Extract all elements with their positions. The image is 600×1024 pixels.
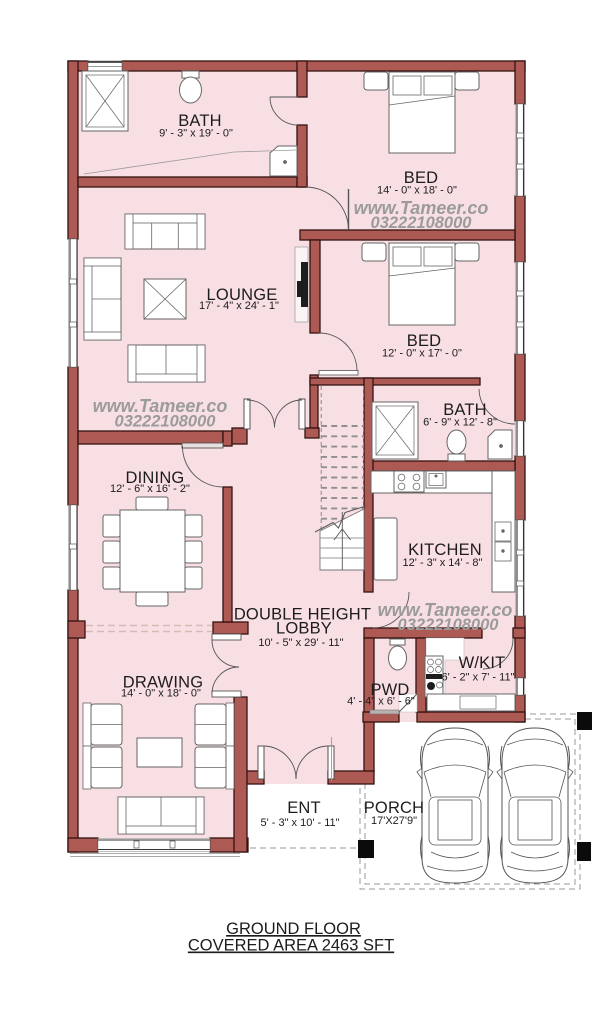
svg-text:12' - 3" x 14' - 8": 12' - 3" x 14' - 8" (403, 557, 483, 569)
svg-text:5' - 3" x 10' - 11": 5' - 3" x 10' - 11" (260, 817, 339, 829)
svg-text:14' - 0" x 18' - 0": 14' - 0" x 18' - 0" (377, 185, 457, 197)
svg-text:4' - 4" x 6' - 6": 4' - 4" x 6' - 6" (347, 696, 415, 708)
svg-text:12' - 6" x 16' - 2": 12' - 6" x 16' - 2" (110, 483, 190, 495)
svg-text:03222108000: 03222108000 (398, 616, 500, 634)
svg-text:14' - 0" x 18' - 0": 14' - 0" x 18' - 0" (121, 688, 201, 700)
svg-text:12' - 0" x 17' - 0": 12' - 0" x 17' - 0" (382, 348, 462, 360)
svg-text:9' - 3" x 19' - 0": 9' - 3" x 19' - 0" (159, 128, 233, 140)
svg-text:GROUND FLOOR: GROUND FLOOR (226, 920, 361, 938)
svg-text:ENT: ENT (287, 799, 321, 817)
svg-text:03222108000: 03222108000 (115, 413, 217, 431)
svg-text:6' - 9" x 12' - 8": 6' - 9" x 12' - 8" (423, 417, 497, 429)
svg-text:6' - 2" x 7' - 11": 6' - 2" x 7' - 11" (442, 672, 515, 684)
svg-text:03222108000: 03222108000 (371, 214, 473, 232)
svg-text:17'X27'9": 17'X27'9" (371, 815, 417, 827)
svg-text:LOBBY: LOBBY (276, 620, 332, 638)
svg-text:COVERED AREA 2463 SFT: COVERED AREA 2463 SFT (188, 937, 394, 955)
svg-text:W/KIT: W/KIT (459, 654, 506, 672)
svg-text:10' - 5" x 29' - 11": 10' - 5" x 29' - 11" (258, 637, 343, 649)
svg-text:17' - 4" x 24' - 1": 17' - 4" x 24' - 1" (199, 300, 279, 312)
